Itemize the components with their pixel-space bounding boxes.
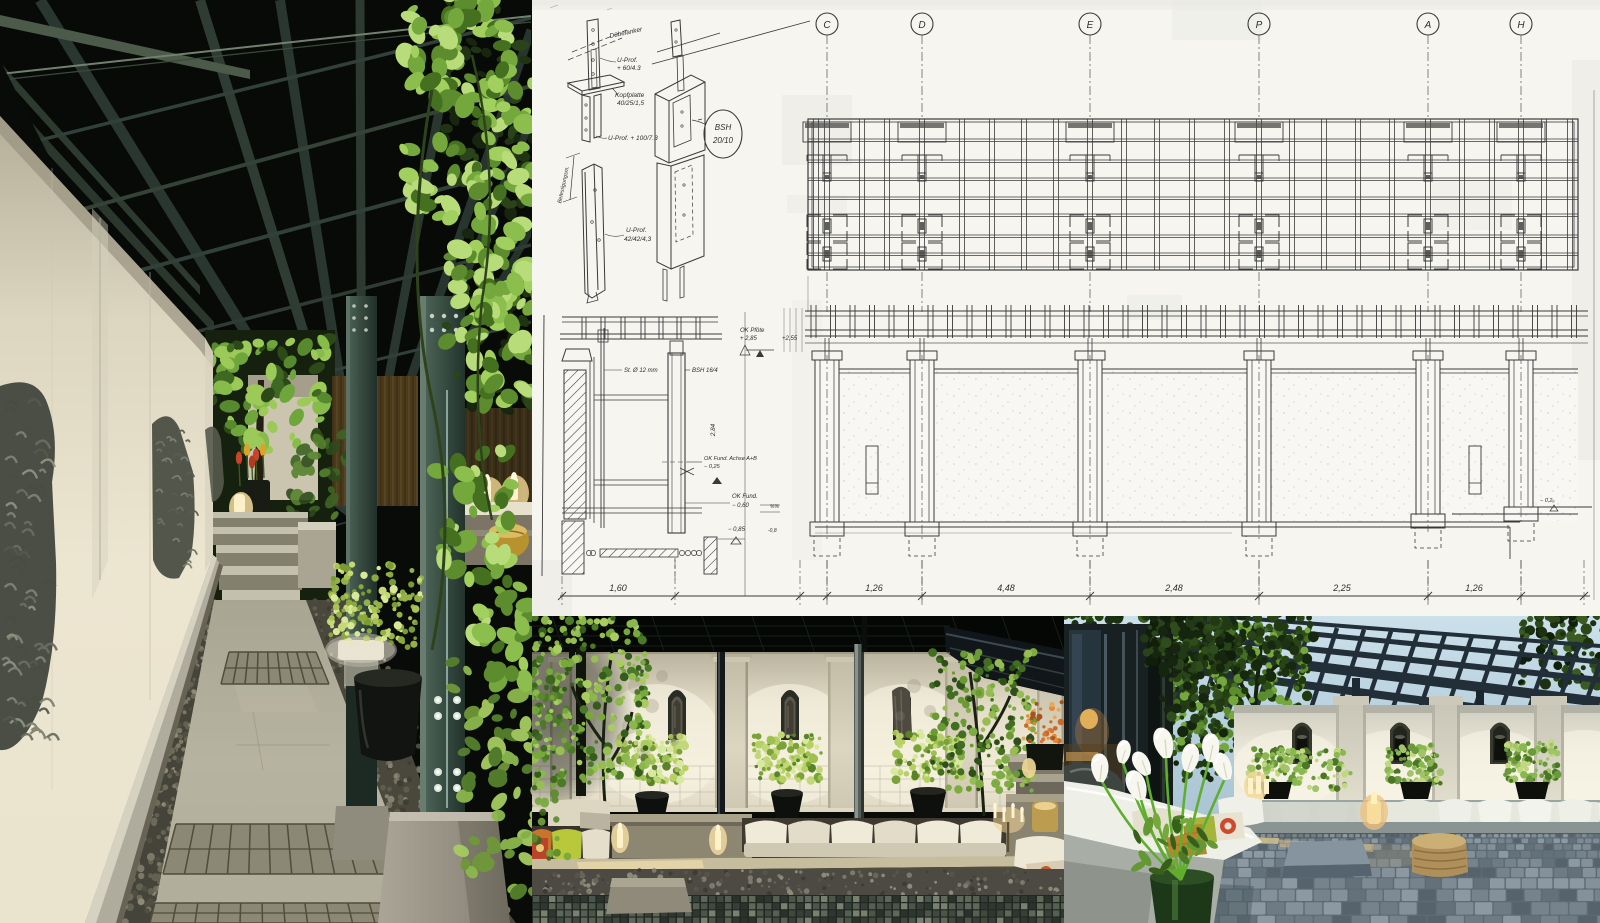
svg-text:Kopfplatte: Kopfplatte <box>615 92 645 99</box>
svg-text:U-Prof.: U-Prof. <box>617 57 638 64</box>
svg-text:+ 60/4.3: + 60/4.3 <box>617 65 641 72</box>
svg-text:C: C <box>823 20 831 31</box>
svg-text:2,84: 2,84 <box>710 423 717 437</box>
svg-text:− 0,60: − 0,60 <box>732 503 750 509</box>
svg-text:St. Ø 12 mm: St. Ø 12 mm <box>624 368 658 374</box>
svg-text:U-Prof.: U-Prof. <box>626 227 647 234</box>
svg-text:− 0,85: − 0,85 <box>728 527 746 533</box>
svg-text:− 0,2ₒ: − 0,2ₒ <box>1540 498 1555 504</box>
svg-text:2,48: 2,48 <box>1164 583 1183 593</box>
svg-text:40/25/1,5: 40/25/1,5 <box>617 100 644 107</box>
svg-text:BSH: BSH <box>715 123 732 132</box>
svg-text:OK Fund. Achse A+B: OK Fund. Achse A+B <box>704 456 757 462</box>
svg-text:BSH 16/4: BSH 16/4 <box>692 368 718 374</box>
svg-text:1,26: 1,26 <box>1465 583 1483 593</box>
svg-text:A: A <box>1424 20 1432 31</box>
svg-text:− 0,25: − 0,25 <box>704 464 721 470</box>
svg-text:E: E <box>1087 20 1094 31</box>
svg-text:+ 2,85: + 2,85 <box>740 336 758 342</box>
svg-text:2,25: 2,25 <box>1332 583 1352 593</box>
svg-text:1,26: 1,26 <box>865 583 883 593</box>
svg-text:H: H <box>1517 20 1525 31</box>
svg-text:P: P <box>1256 20 1263 31</box>
svg-text:42/42/4,3: 42/42/4,3 <box>624 236 651 243</box>
svg-text:1,60: 1,60 <box>609 583 627 593</box>
svg-text:OK Pföte: OK Pföte <box>740 328 765 334</box>
svg-text:20/10: 20/10 <box>712 136 734 145</box>
svg-text:4,48: 4,48 <box>997 583 1015 593</box>
svg-text:-0,8: -0,8 <box>768 528 777 534</box>
svg-text:OK Fund.: OK Fund. <box>732 494 758 500</box>
svg-text:U-Prof. + 100/7.3: U-Prof. + 100/7.3 <box>608 135 658 142</box>
svg-text:D: D <box>918 20 925 31</box>
